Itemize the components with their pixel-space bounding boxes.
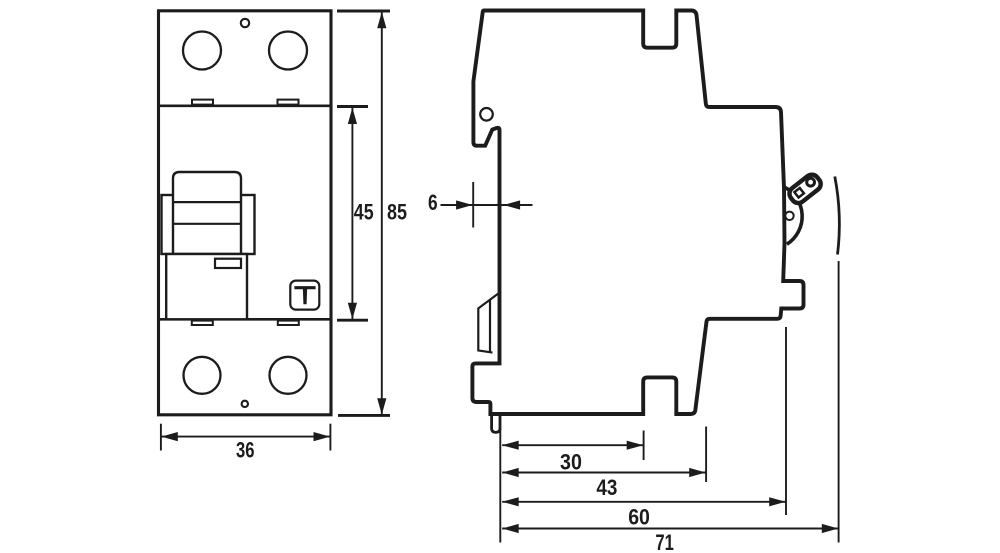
svg-text:60: 60	[628, 504, 650, 529]
svg-text:45: 45	[354, 200, 374, 225]
svg-text:30: 30	[560, 449, 582, 474]
svg-text:6: 6	[428, 190, 438, 215]
svg-text:43: 43	[596, 475, 617, 500]
svg-text:71: 71	[655, 530, 674, 553]
svg-text:85: 85	[387, 200, 407, 225]
svg-text:36: 36	[236, 438, 255, 463]
